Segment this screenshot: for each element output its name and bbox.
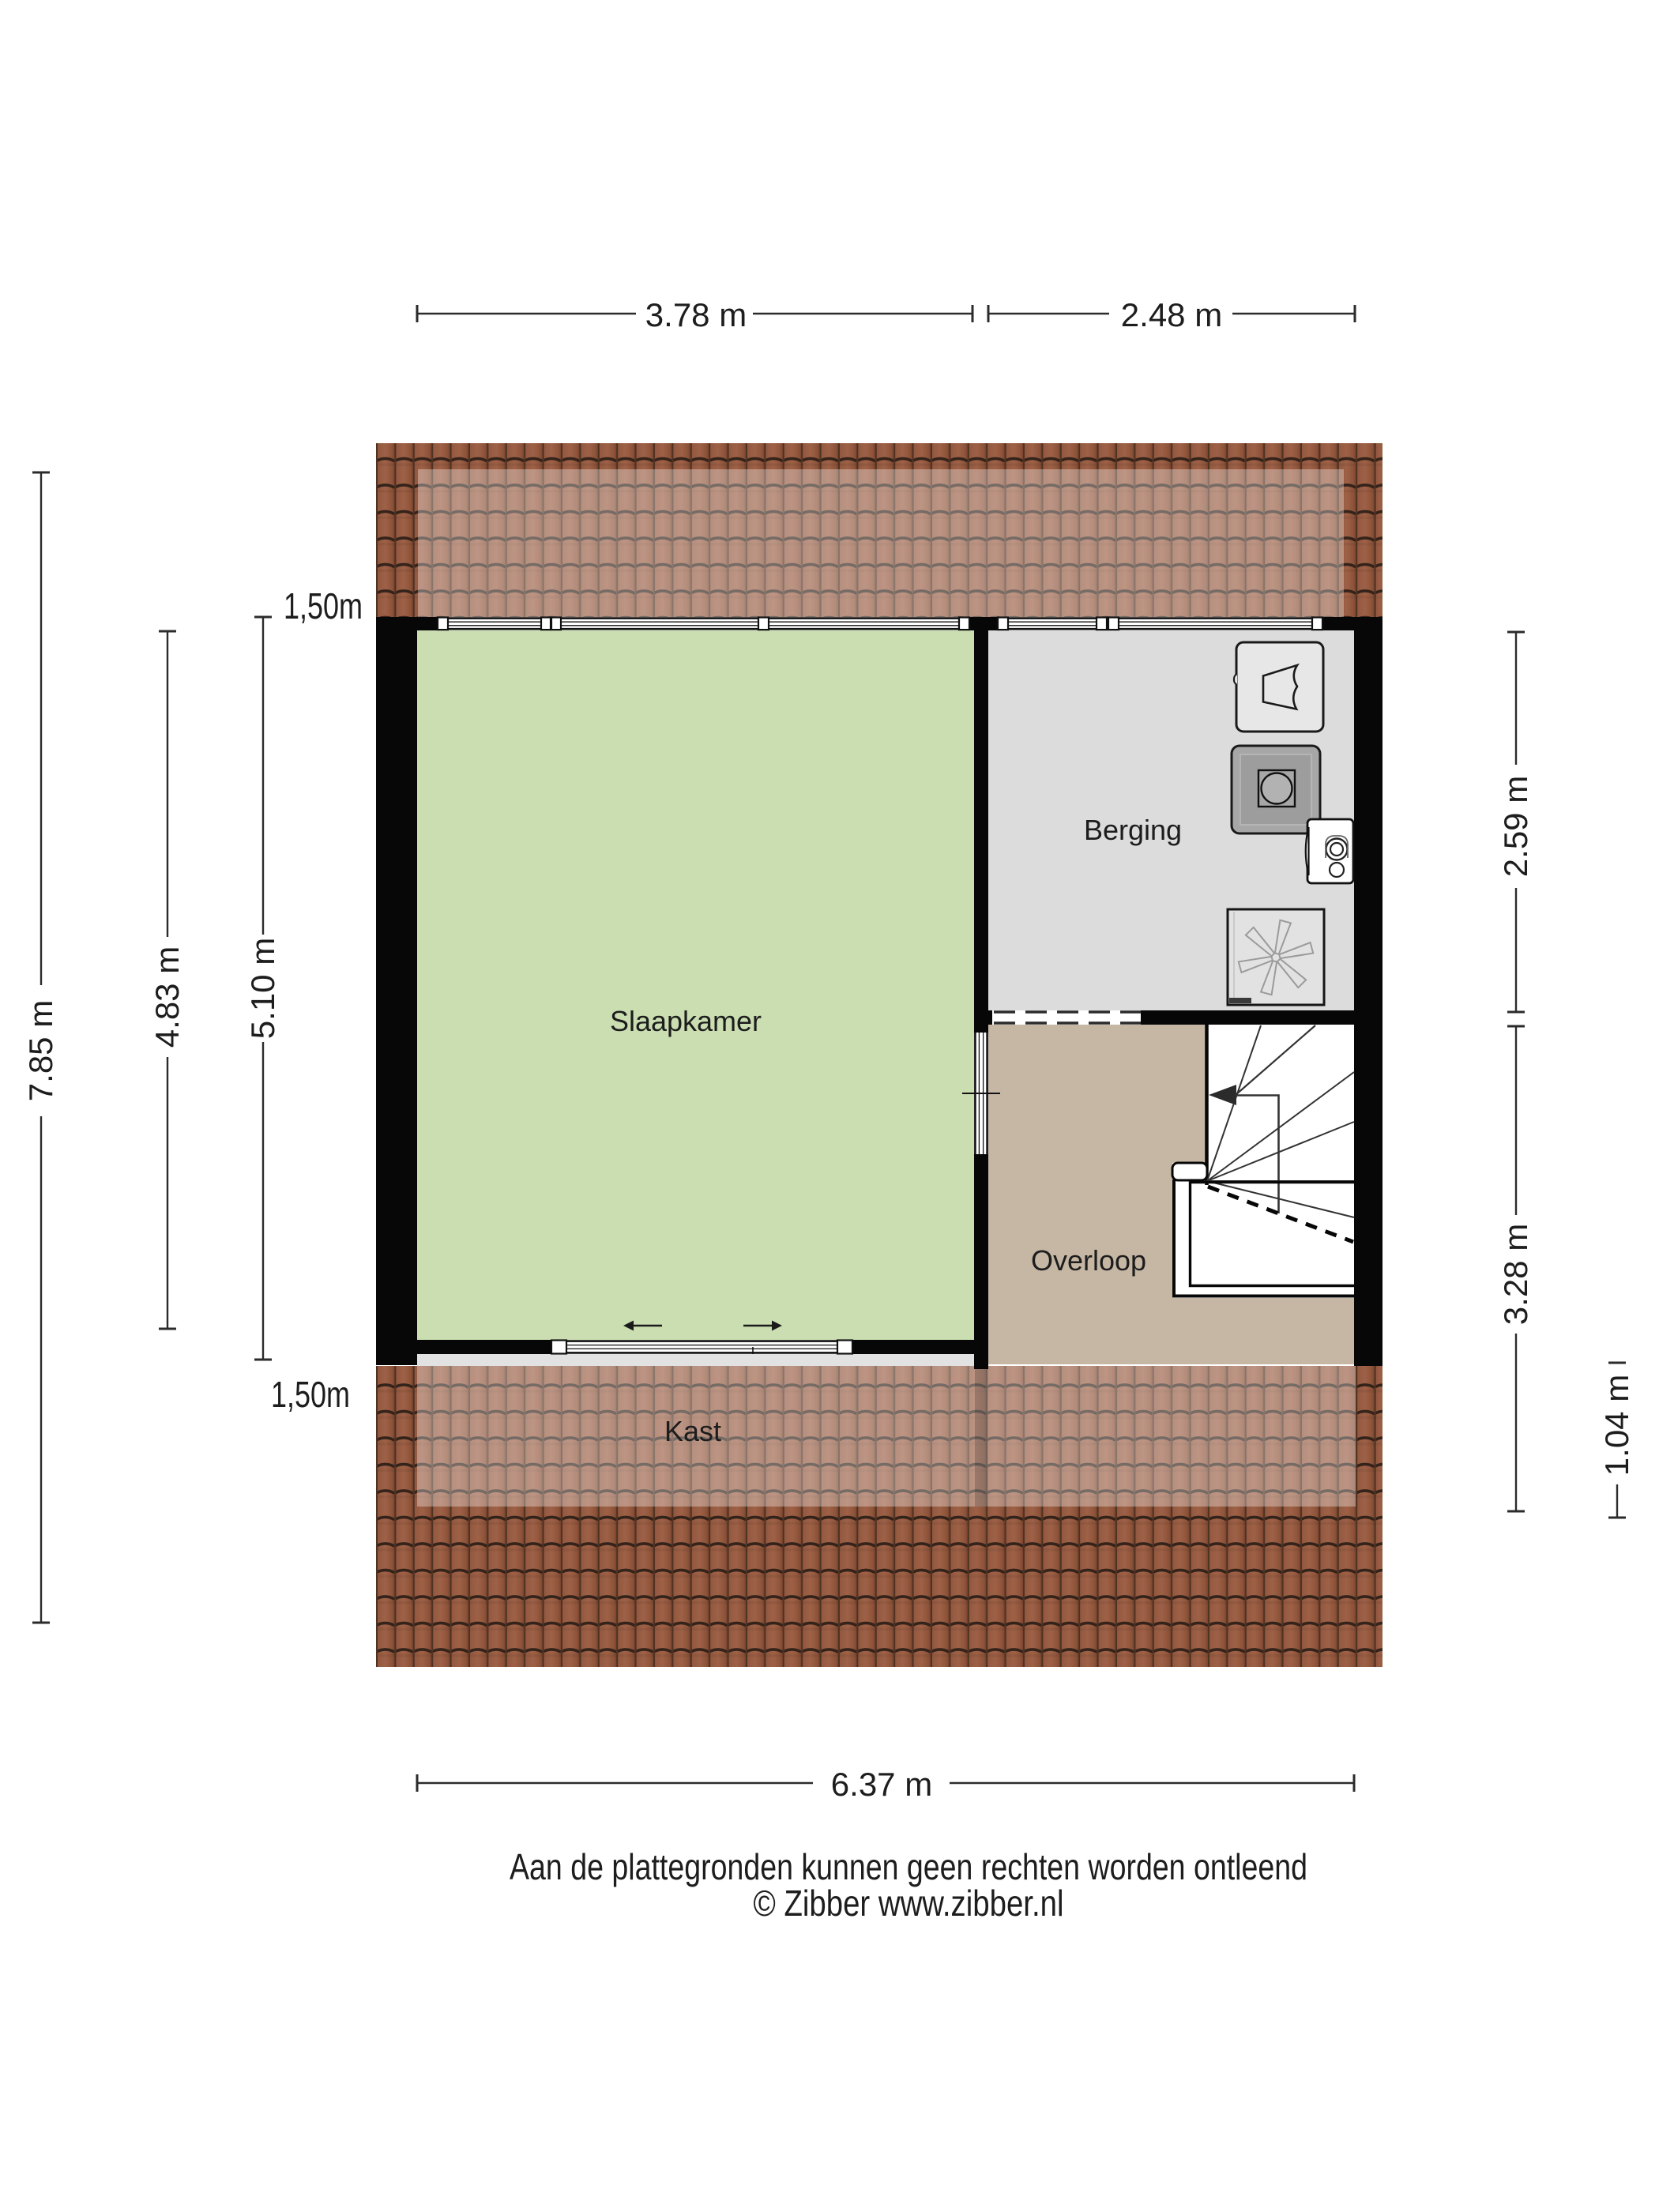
svg-text:2.48 m: 2.48 m (1121, 296, 1222, 333)
svg-text:Aan de plattegronden kunnen ge: Aan de plattegronden kunnen geen rechten… (510, 1846, 1307, 1887)
svg-text:4.83 m: 4.83 m (149, 946, 186, 1048)
svg-text:5.10 m: 5.10 m (244, 938, 281, 1039)
svg-text:1,50m: 1,50m (271, 1374, 350, 1415)
svg-text:7.85 m: 7.85 m (22, 1000, 59, 1101)
svg-text:3.78 m: 3.78 m (645, 296, 747, 333)
svg-text:Kast: Kast (664, 1415, 721, 1447)
svg-text:1,50m: 1,50m (284, 585, 363, 626)
svg-text:2.59 m: 2.59 m (1497, 776, 1534, 877)
svg-text:Slaapkamer: Slaapkamer (610, 1005, 762, 1037)
svg-text:Overloop: Overloop (1031, 1244, 1146, 1277)
svg-text:1.04 m: 1.04 m (1598, 1375, 1635, 1476)
svg-text:6.37 m: 6.37 m (831, 1766, 932, 1803)
svg-text:3.28 m: 3.28 m (1497, 1224, 1534, 1325)
svg-text:© Zibber www.zibber.nl: © Zibber www.zibber.nl (754, 1883, 1064, 1924)
svg-text:Berging: Berging (1084, 814, 1182, 846)
